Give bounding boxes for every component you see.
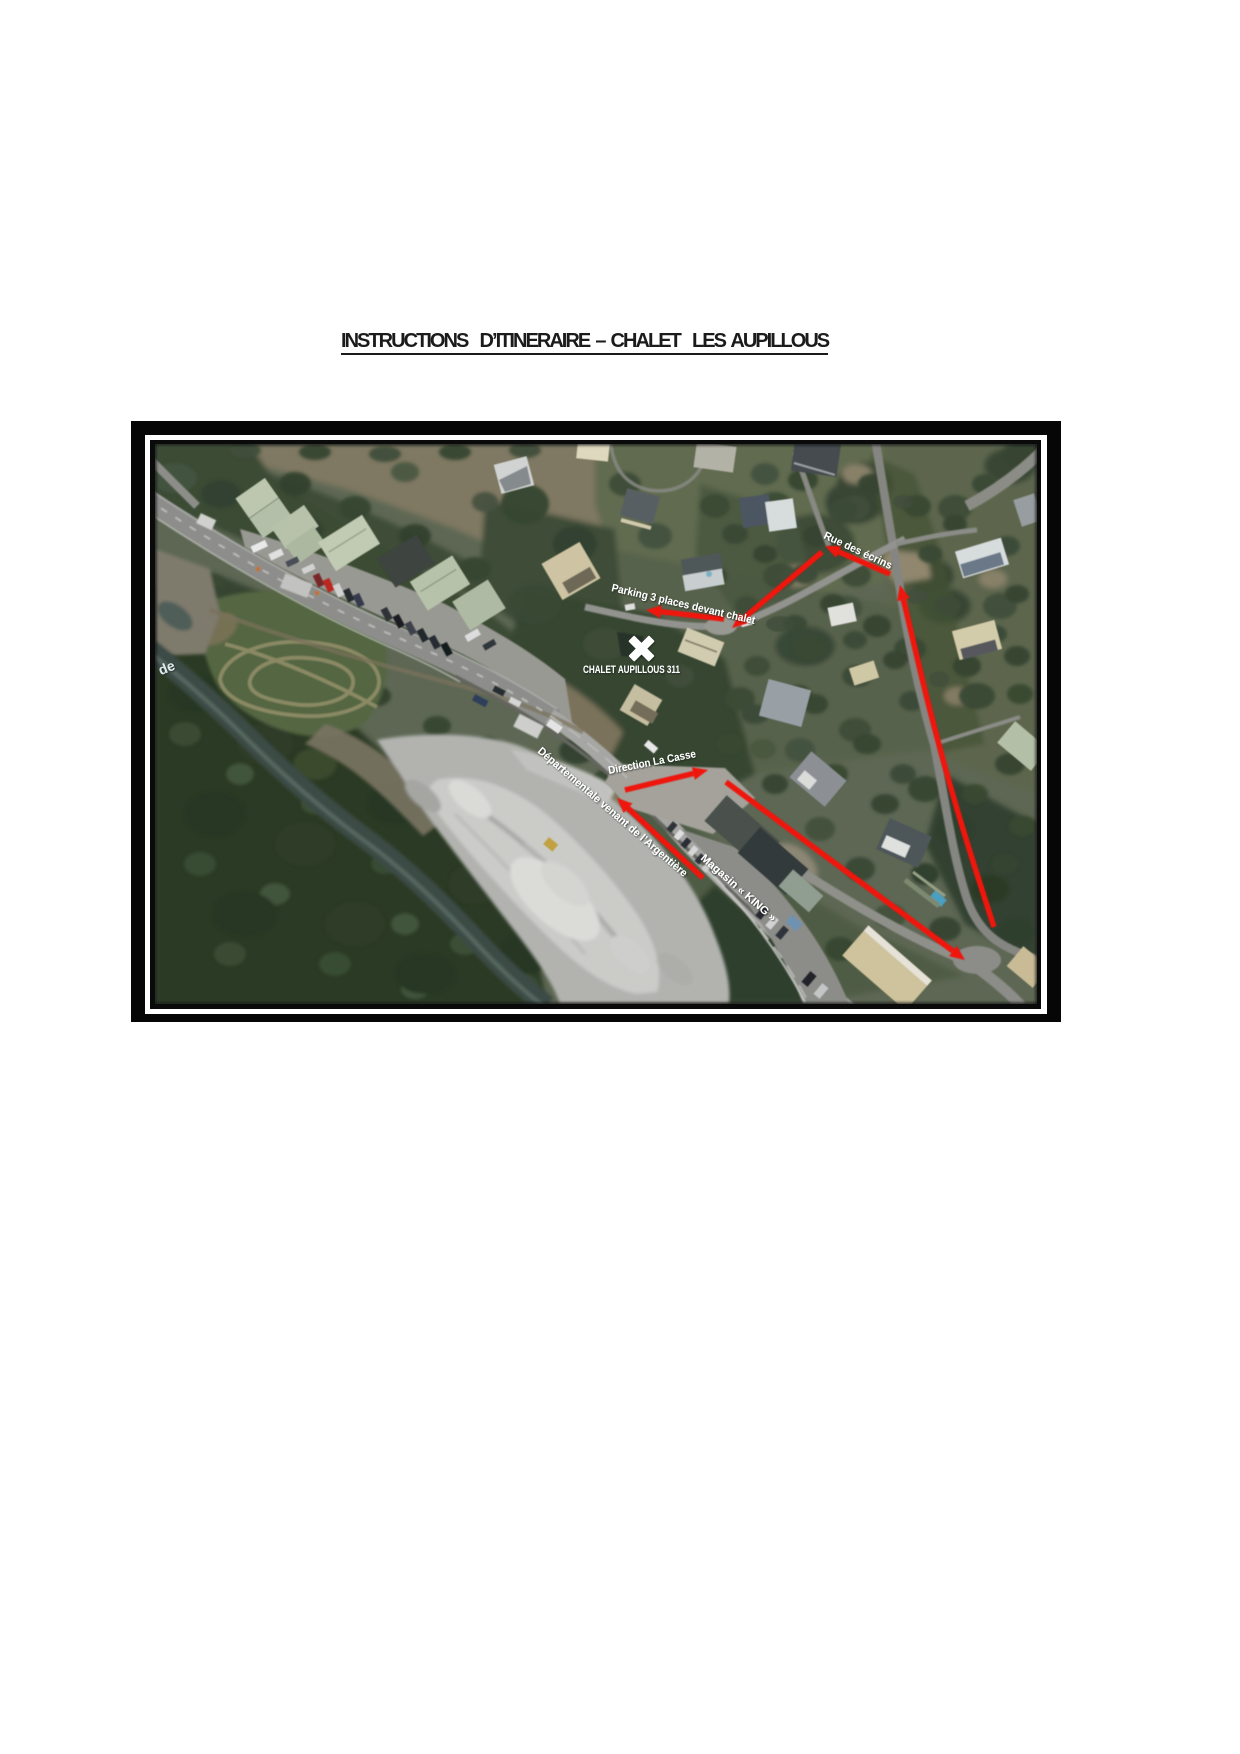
svg-text:CHALET AUPILLOUS 311: CHALET AUPILLOUS 311 bbox=[583, 664, 680, 676]
